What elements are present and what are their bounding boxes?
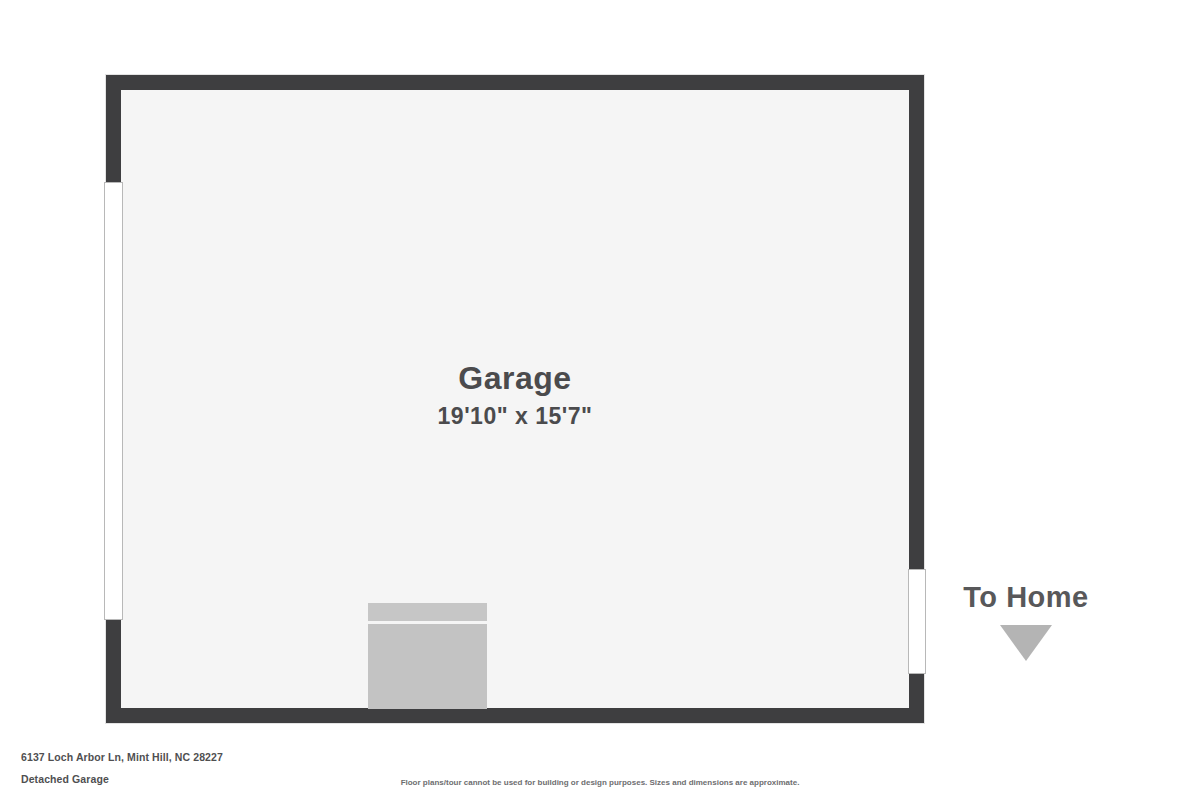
doorway-to-home-opening (908, 569, 926, 674)
room-dimensions-label: 19'10" x 15'7" (121, 403, 909, 430)
utility-fixture-body (368, 624, 487, 709)
property-address-text: 6137 Loch Arbor Ln, Mint Hill, NC 28227 (21, 751, 223, 763)
to-home-navigation[interactable]: To Home (938, 581, 1114, 661)
room-label-group: Garage 19'10" x 15'7" (121, 362, 909, 430)
floorplan-canvas: Garage 19'10" x 15'7" To Home 6137 Loch … (0, 0, 1200, 800)
to-home-label: To Home (938, 581, 1114, 614)
disclaimer-text: Floor plans/tour cannot be used for buil… (0, 778, 1200, 787)
utility-fixture-top (368, 603, 487, 621)
triangle-down-icon (1000, 625, 1052, 661)
room-name-label: Garage (121, 362, 909, 396)
